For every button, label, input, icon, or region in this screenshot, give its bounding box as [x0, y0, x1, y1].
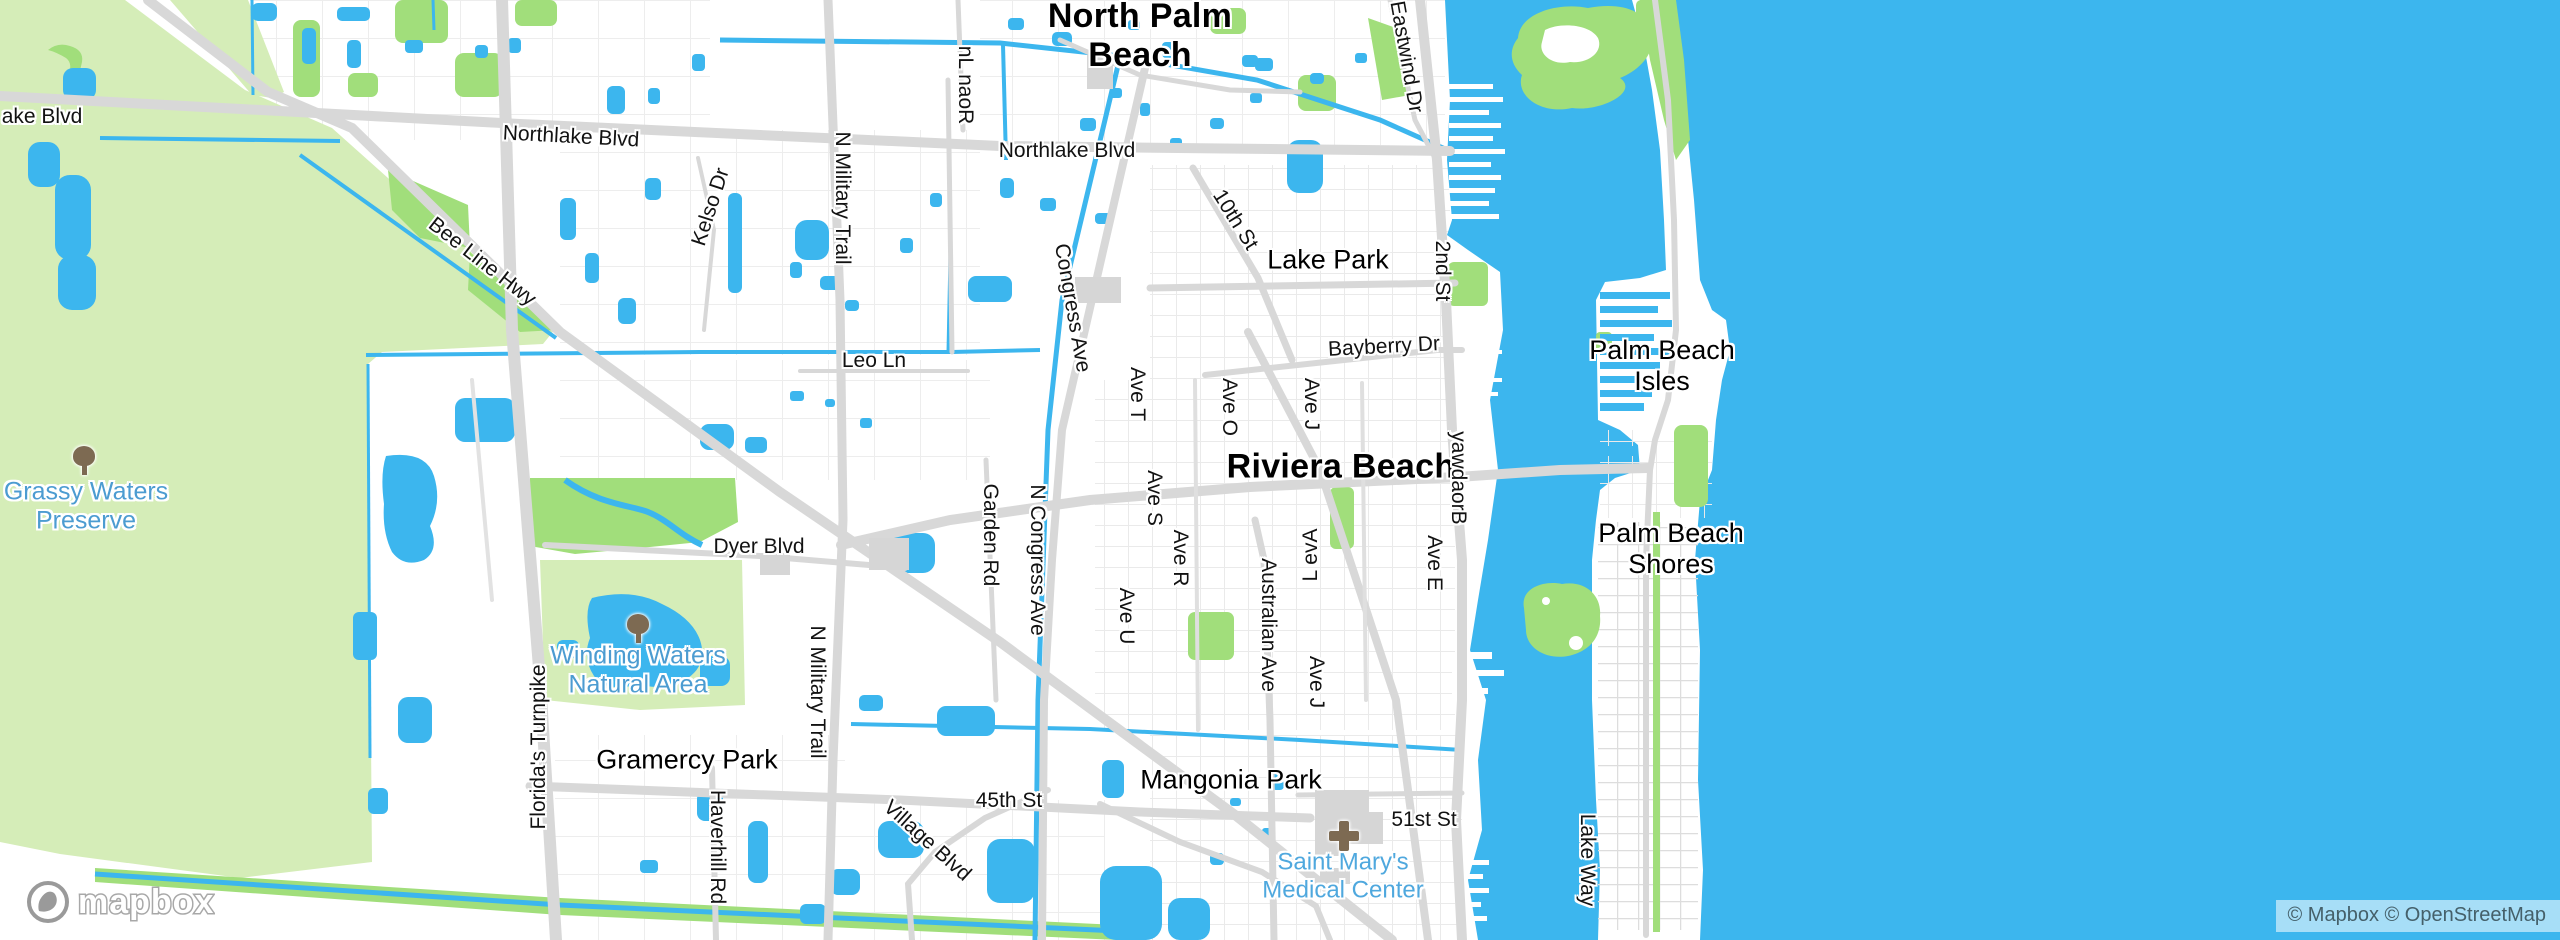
map-canvas[interactable]: [0, 0, 2560, 940]
attribution-text: © Mapbox © OpenStreetMap: [2288, 904, 2547, 926]
mapbox-pin-icon: [26, 880, 70, 924]
mapbox-logo-text: mapbox: [78, 883, 214, 922]
map-root[interactable]: North PalmBeachRiviera BeachLake ParkPal…: [0, 0, 2560, 940]
map-attribution[interactable]: © Mapbox © OpenStreetMap: [2276, 900, 2560, 932]
mapbox-logo[interactable]: mapbox: [26, 880, 214, 924]
